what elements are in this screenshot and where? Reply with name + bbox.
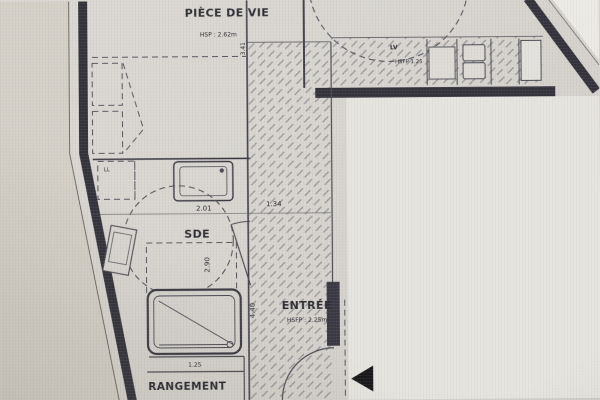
furniture-outline-2 bbox=[92, 111, 122, 153]
shower-zone-outline bbox=[146, 242, 236, 293]
dimension-4-40: 4.40 bbox=[249, 303, 257, 319]
door-jamb bbox=[327, 282, 340, 346]
exterior-left bbox=[0, 1, 119, 400]
dimension-3-41: 3.41 bbox=[240, 42, 247, 56]
exterior-top-right bbox=[552, 0, 599, 60]
partition-living bbox=[304, 0, 305, 88]
wc-fixture bbox=[103, 225, 137, 275]
room-label-sde: SDE bbox=[184, 228, 210, 241]
kitchen-unit bbox=[429, 47, 455, 79]
room-label-piece-de-vie: PIÈCE DE VIE bbox=[185, 6, 270, 20]
room-label-rangement: RANGEMENT bbox=[148, 381, 226, 394]
appliance-label-lv: LV bbox=[390, 44, 398, 51]
dimension-2-90: 2.90 bbox=[203, 257, 211, 273]
door-plane-dashed bbox=[345, 300, 346, 400]
room-rangement: 1.25 RANGEMENT bbox=[147, 356, 244, 400]
turning-circle-sde bbox=[123, 185, 234, 296]
washbasin-faucet bbox=[220, 168, 224, 172]
floor-plan-drawing: PIÈCE DE VIE HSP : 2.62m 3.41 LV HSFP 1.… bbox=[0, 0, 600, 400]
shower-tray bbox=[148, 289, 241, 354]
sde-door-arc bbox=[231, 221, 250, 224]
dimension-1-25: 1.25 bbox=[188, 362, 202, 369]
dimension-2-01: 2.01 bbox=[196, 205, 212, 213]
furniture-outline-1 bbox=[92, 63, 122, 105]
appliance-note-lv: HSFP 1.25 bbox=[395, 59, 423, 65]
sink-bowl-1 bbox=[463, 45, 485, 61]
kitchen-corner-unit bbox=[521, 40, 541, 80]
sde-top-wall bbox=[93, 158, 250, 159]
floor-plan-photo: PIÈCE DE VIE HSP : 2.62m 3.41 LV HSFP 1.… bbox=[0, 0, 600, 400]
sink-bowl-2 bbox=[463, 63, 485, 79]
wall-horizontal bbox=[315, 86, 555, 98]
washbasin bbox=[174, 161, 233, 200]
furniture-outline-3 bbox=[123, 63, 144, 153]
room-label-entree: ENTRÉE bbox=[282, 299, 332, 312]
exterior-right bbox=[346, 96, 600, 400]
ceiling-break-line bbox=[92, 56, 246, 57]
ceiling-note-piece-de-vie: HSP : 2.62m bbox=[200, 31, 237, 38]
dimension-1-34: 1.34 bbox=[266, 200, 282, 208]
ceiling-note-entree: HSFP : 2.25m bbox=[287, 317, 328, 324]
appliance-label-ll: LL bbox=[104, 167, 110, 173]
